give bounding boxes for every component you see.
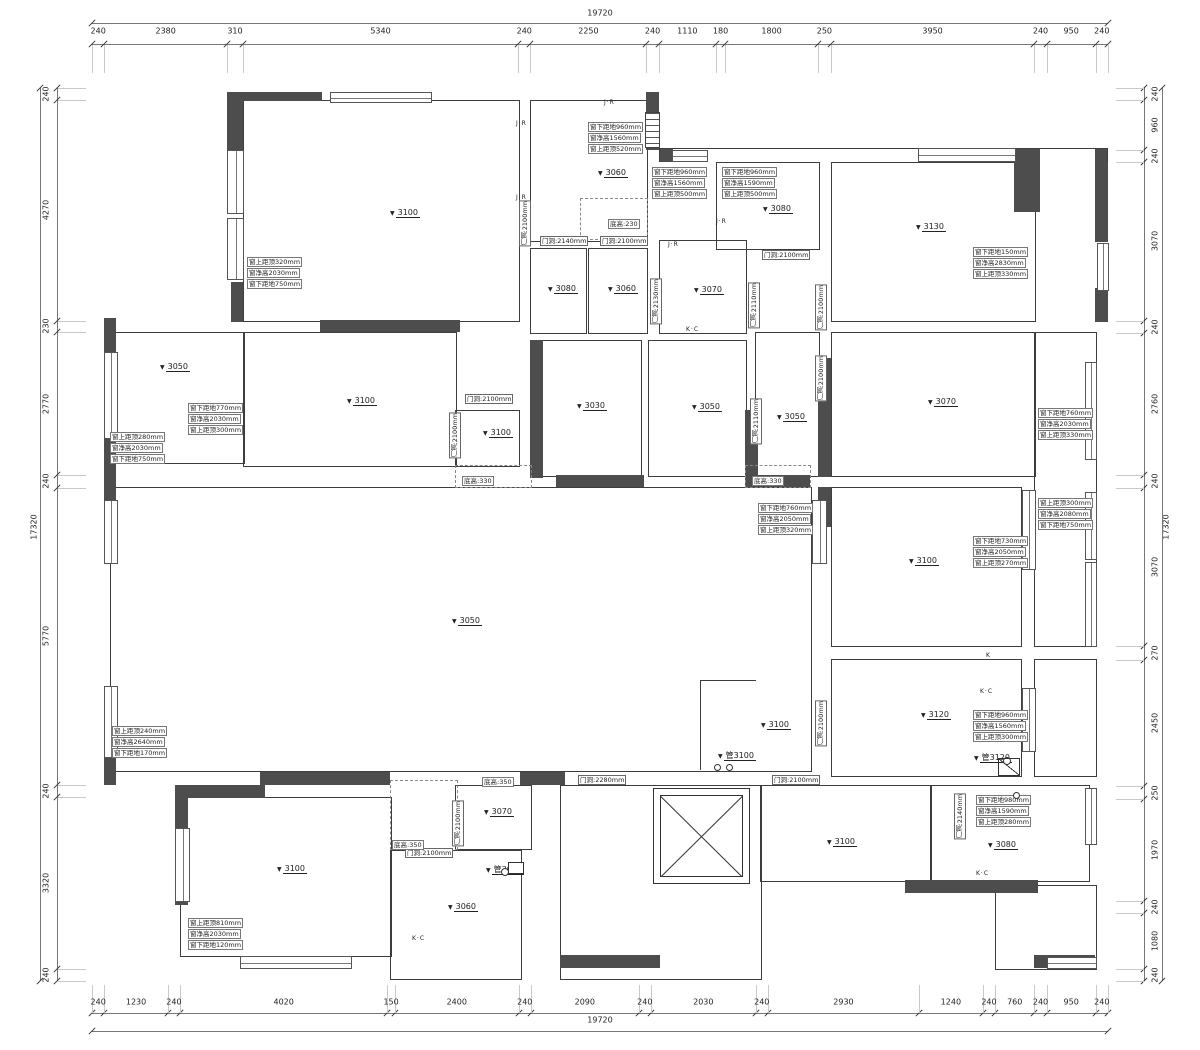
window-mullion <box>1029 689 1030 751</box>
elevation-triangle-icon: ▼ <box>390 210 395 217</box>
window-symbol <box>104 500 118 564</box>
elevation-value: 3050 <box>166 362 190 372</box>
door-note: 门洞:2280mm <box>578 775 626 785</box>
elevation-triangle-icon: ▼ <box>694 287 699 294</box>
window-note-line: 窗下距地760mm <box>758 503 813 513</box>
dim-ext <box>58 969 86 970</box>
wall <box>905 880 1038 893</box>
dim-label-bottom: 950 <box>1064 998 1079 1007</box>
door-note: 门洞:2110mm <box>748 282 760 328</box>
elevator-shaft <box>653 788 750 884</box>
door-note: 门洞:2100mm <box>815 284 827 330</box>
dim-label-bottom: 2030 <box>693 998 713 1007</box>
room-height-label: ▼3120 <box>921 711 951 720</box>
dim-ext <box>92 45 93 73</box>
window-note: 窗下距地150mm窗净高2830mm窗上距顶330mm <box>973 247 1028 280</box>
window-note-line: 窗下距地960mm <box>722 167 777 177</box>
dim-label-bottom: 1230 <box>126 998 146 1007</box>
window-note-line: 窗上距顶300mm <box>188 425 243 435</box>
wall <box>232 92 322 101</box>
elevation-value: 3050 <box>783 412 807 422</box>
dim-label-top: 1110 <box>677 27 697 36</box>
sill-height-note: 底高:230 <box>608 219 640 229</box>
dim-ext <box>659 45 660 73</box>
dim-ext <box>1108 45 1109 73</box>
room-height-label: ▼3070 <box>484 808 514 817</box>
door-note: 门洞:2100mm <box>519 200 531 246</box>
window-note-line: 窗上距顶500mm <box>652 189 707 199</box>
dim-label-top: 310 <box>227 27 242 36</box>
sill-height-note: 底高:330 <box>752 476 784 486</box>
dim-label-left: 240 <box>42 87 51 102</box>
dim-ext <box>1116 333 1144 334</box>
window-mullion <box>820 501 821 563</box>
window-note: 窗下距地730mm窗净高2050mm窗上距顶270mm <box>973 536 1028 569</box>
elevation-value: 3100 <box>833 837 857 847</box>
room-height-label: ▼3100 <box>483 429 513 438</box>
dim-label-bottom: 240 <box>517 998 532 1007</box>
dim-total-bottom: 19720 <box>587 1016 612 1025</box>
dim-label-left: 4270 <box>42 200 51 220</box>
window-note-line: 窗上距顶300mm <box>973 732 1028 742</box>
window-mullion <box>331 98 431 99</box>
elevation-triangle-icon: ▼ <box>160 364 165 371</box>
dim-label-right: 3070 <box>1151 231 1160 251</box>
dim-label-right: 240 <box>1151 899 1160 914</box>
wall-line <box>659 148 1108 149</box>
window-note: 窗上距顶320mm窗净高2030mm窗下距地750mm <box>247 257 302 290</box>
elevation-value: 管3100 <box>724 751 756 761</box>
dim-ext <box>58 332 86 333</box>
dim-ext <box>1116 162 1144 163</box>
dim-label-bottom: 240 <box>981 998 996 1007</box>
window-symbol <box>918 148 1016 162</box>
dim-label-right: 270 <box>1151 645 1160 660</box>
wall <box>659 148 673 162</box>
elevation-triangle-icon: ▼ <box>988 842 993 849</box>
elevation-triangle-icon: ▼ <box>483 430 488 437</box>
elevation-value: 3070 <box>934 397 958 407</box>
room-height-label: ▼3080 <box>763 205 793 214</box>
sill-height-note: 底高:350 <box>482 777 514 787</box>
elevation-value: 3060 <box>604 168 628 178</box>
room-outline <box>455 785 532 850</box>
window-note-line: 窗上距顶300mm <box>1038 498 1093 508</box>
dim-ext <box>1116 150 1144 151</box>
wall <box>1095 148 1108 242</box>
room-height-label: ▼3100 <box>390 209 420 218</box>
wall <box>1014 148 1040 212</box>
window-symbol <box>812 500 827 564</box>
small-fixture <box>508 862 524 874</box>
room-outline <box>110 487 812 772</box>
dim-label-bottom: 2400 <box>447 998 467 1007</box>
wall <box>520 772 565 785</box>
wall <box>530 340 543 478</box>
room-outline <box>755 332 820 477</box>
window-mullion <box>1091 563 1092 646</box>
dim-ext <box>1116 488 1144 489</box>
elevation-triangle-icon: ▼ <box>277 866 282 873</box>
dim-ext <box>58 797 86 798</box>
dim-ext <box>530 45 531 73</box>
window-note-line: 窗下距地960mm <box>973 710 1028 720</box>
dim-label-right: 240 <box>1151 319 1160 334</box>
room-height-label: ▼3050 <box>692 403 722 412</box>
window-mullion <box>183 829 184 901</box>
dim-ext <box>104 45 105 73</box>
window-symbol <box>240 956 352 969</box>
room-height-label: ▼3130 <box>916 223 946 232</box>
room-height-label: ▼管3100 <box>718 752 756 761</box>
window-note-line: 窗上距顶330mm <box>1038 430 1093 440</box>
point-mark: J·R <box>516 194 527 201</box>
elevation-value: 3050 <box>698 402 722 412</box>
elevation-triangle-icon: ▼ <box>718 753 723 760</box>
window-note-line: 窗下距地750mm <box>110 454 165 464</box>
door-note: 门洞:2100mm <box>815 355 827 401</box>
dim-ext <box>227 45 228 73</box>
room-height-label: ▼3080 <box>988 841 1018 850</box>
elevation-triangle-icon: ▼ <box>608 286 613 293</box>
dim-ext <box>1116 321 1144 322</box>
wall <box>260 772 390 785</box>
elevator-inner <box>660 795 743 877</box>
dim-label-top: 240 <box>1033 27 1048 36</box>
window-note-line: 窗下距地120mm <box>188 940 243 950</box>
dim-label-bottom: 2090 <box>575 998 595 1007</box>
window-symbol <box>1085 562 1097 647</box>
dim-label-top: 180 <box>713 27 728 36</box>
dim-ext <box>58 475 86 476</box>
door-note: 门洞:2100mm <box>600 236 648 246</box>
window-note-line: 窗下距地150mm <box>973 247 1028 257</box>
dim-ext <box>1116 646 1144 647</box>
elevation-value: 3100 <box>767 720 791 730</box>
elevation-triangle-icon: ▼ <box>486 867 491 874</box>
wall <box>556 475 644 487</box>
window-mullion <box>673 156 707 157</box>
dim-label-left: 240 <box>42 474 51 489</box>
dim-tick <box>1104 19 1111 26</box>
window-note-line: 窗净高2080mm <box>1038 509 1091 519</box>
dim-ext <box>1034 45 1035 73</box>
dim-label-right: 240 <box>1151 87 1160 102</box>
elevation-triangle-icon: ▼ <box>761 722 766 729</box>
dim-line-bottom <box>92 1013 1108 1014</box>
dim-label-bottom: 2930 <box>833 998 853 1007</box>
dim-label-top: 240 <box>517 27 532 36</box>
dim-ext <box>1116 88 1144 89</box>
wall <box>231 282 243 322</box>
room-height-label: ▼3050 <box>160 363 190 372</box>
window-symbol <box>104 352 118 439</box>
dim-ext <box>1116 660 1144 661</box>
wall <box>175 785 265 798</box>
room-height-label: ▼3060 <box>448 903 478 912</box>
window-mullion <box>1103 244 1104 290</box>
room-height-label: ▼3100 <box>827 838 857 847</box>
dim-label-bottom: 1240 <box>941 998 961 1007</box>
point-mark: J·R <box>716 218 727 225</box>
dim-ext <box>646 45 647 73</box>
sill-height-note: 底高:350 <box>392 840 424 850</box>
dim-ext <box>58 100 86 101</box>
elevation-triangle-icon: ▼ <box>921 712 926 719</box>
dim-ext <box>1116 913 1144 914</box>
dim-label-right: 1080 <box>1151 931 1160 951</box>
dim-ext <box>58 785 86 786</box>
window-note-line: 窗净高2030mm <box>1038 419 1091 429</box>
dim-ext <box>1116 799 1144 800</box>
point-mark: J·R <box>604 99 615 106</box>
window-note-line: 窗净高1590mm <box>722 178 775 188</box>
wall-line <box>1107 148 1108 162</box>
dim-total-left: 17320 <box>30 514 39 539</box>
dim-ext <box>1116 969 1144 970</box>
window-note-line: 窗净高2050mm <box>973 547 1026 557</box>
dim-label-right: 1970 <box>1151 840 1160 860</box>
window-note-line: 窗净高2640mm <box>112 737 165 747</box>
window-symbol <box>1047 957 1097 969</box>
dim-ext <box>58 88 86 89</box>
elevation-value: 3080 <box>994 840 1018 850</box>
wall <box>227 92 243 158</box>
elevation-triangle-icon: ▼ <box>577 403 582 410</box>
window-symbol <box>175 828 190 902</box>
dim-label-top: 240 <box>91 27 106 36</box>
dim-label-bottom: 240 <box>166 998 181 1007</box>
window-note-line: 窗下距地960mm <box>652 167 707 177</box>
door-note: 门洞:2100mm <box>449 412 461 458</box>
dim-label-top: 2250 <box>578 27 598 36</box>
wall <box>320 320 460 332</box>
window-note-line: 窗下距地980mm <box>976 795 1031 805</box>
dim-label-bottom: 240 <box>1094 998 1109 1007</box>
elevation-triangle-icon: ▼ <box>548 286 553 293</box>
elevation-value: 3120 <box>927 710 951 720</box>
window-mullion <box>1091 789 1092 844</box>
sill-height-note: 底高:330 <box>462 476 494 486</box>
floor-plan-canvas: 19720 19720 17320 17320 ▼3100▼3060▼3080▼… <box>0 0 1200 1050</box>
elevation-triangle-icon: ▼ <box>692 404 697 411</box>
elevation-triangle-icon: ▼ <box>598 170 603 177</box>
dim-label-bottom: 4020 <box>273 998 293 1007</box>
elevation-value: 3030 <box>583 401 607 411</box>
dim-ext <box>1116 100 1144 101</box>
window-note-line: 窗净高2030mm <box>188 414 241 424</box>
room-height-label: ▼3050 <box>452 617 482 626</box>
window-note-line: 窗上距顶320mm <box>247 257 302 267</box>
dim-ext <box>1047 45 1048 73</box>
window-mullion <box>111 501 112 563</box>
window-note: 窗下距地760mm窗净高2030mm窗上距顶330mm <box>1038 408 1093 441</box>
dim-total-top: 19720 <box>587 9 612 18</box>
window-note-line: 窗上距顶270mm <box>973 558 1028 568</box>
elevation-value: 3130 <box>922 222 946 232</box>
door-note: 门洞:2100mm <box>815 700 827 746</box>
dim-label-right: 250 <box>1151 785 1160 800</box>
point-mark: J·R <box>516 120 527 127</box>
room-outline <box>455 410 520 467</box>
elevation-triangle-icon: ▼ <box>347 398 352 405</box>
point-mark: K·C <box>686 326 699 333</box>
window-symbol <box>227 150 244 214</box>
window-note-line: 窗下距地960mm <box>588 122 643 132</box>
dim-ext <box>725 45 726 73</box>
window-note: 窗下距地760mm窗净高2050mm窗上距顶320mm <box>758 503 813 536</box>
window-note-line: 窗上距顶330mm <box>973 269 1028 279</box>
dim-label-top: 2380 <box>155 27 175 36</box>
dim-tick <box>1158 977 1165 984</box>
room-height-label: ▼3060 <box>608 285 638 294</box>
elevation-triangle-icon: ▼ <box>763 206 768 213</box>
window-symbol <box>1085 788 1097 845</box>
door-note: 门洞:2100mm <box>452 800 464 846</box>
dim-label-right: 240 <box>1151 474 1160 489</box>
dim-label-right: 3070 <box>1151 557 1160 577</box>
window-note-line: 窗净高2030mm <box>110 443 163 453</box>
dim-label-top: 240 <box>645 27 660 36</box>
dim-label-right: 240 <box>1151 148 1160 163</box>
elevation-value: 3100 <box>396 208 420 218</box>
dim-label-right: 2760 <box>1151 394 1160 414</box>
window-note-line: 窗上距顶500mm <box>722 189 777 199</box>
window-note-line: 窗上距顶320mm <box>758 525 813 535</box>
dim-label-top: 1800 <box>761 27 781 36</box>
dim-ext <box>58 321 86 322</box>
dim-ext <box>58 981 86 982</box>
room-outline <box>760 785 932 882</box>
dim-ext <box>518 45 519 73</box>
window-note-line: 窗下距地770mm <box>188 403 243 413</box>
pipe-circle <box>714 764 721 771</box>
window-note-line: 窗净高2030mm <box>247 268 300 278</box>
dim-line-right <box>1144 88 1145 981</box>
dim-label-left: 230 <box>42 319 51 334</box>
dim-label-top: 250 <box>817 27 832 36</box>
door-note: 门洞:2100mm <box>465 394 513 404</box>
dim-total-line-top <box>92 23 1108 24</box>
dim-line-left <box>57 88 58 981</box>
window-note: 窗下距地980mm窗净高1590mm窗上距顶280mm <box>976 795 1031 828</box>
dim-ext <box>1116 901 1144 902</box>
window-mullion <box>1029 491 1030 569</box>
window-note: 窗下距地960mm窗净高1560mm窗上距顶520mm <box>588 122 643 155</box>
window-mullion <box>236 219 237 279</box>
elevation-value: 3100 <box>283 864 307 874</box>
room-height-label: ▼3100 <box>909 557 939 566</box>
window-symbol <box>227 218 244 280</box>
dim-label-bottom: 150 <box>383 998 398 1007</box>
elevation-triangle-icon: ▼ <box>827 839 832 846</box>
elevation-value: 3080 <box>769 204 793 214</box>
pipe-circle <box>726 764 733 771</box>
wall-line <box>700 680 701 770</box>
door-note: 门洞:2130mm <box>650 278 662 324</box>
point-mark: J·R <box>668 241 679 248</box>
elevation-value: 3050 <box>458 616 482 626</box>
window-mullion <box>919 155 1015 156</box>
window-mullion <box>241 963 351 964</box>
dim-label-left: 240 <box>42 784 51 799</box>
dim-ext <box>58 488 86 489</box>
window-note: 窗下距地960mm窗净高1560mm窗上距顶500mm <box>652 167 707 200</box>
point-mark: K·C <box>980 688 993 695</box>
dim-ext <box>1096 45 1097 73</box>
dim-total-line-bottom <box>92 1031 1108 1032</box>
window-mullion <box>111 353 112 438</box>
elevation-value: 3060 <box>614 284 638 294</box>
window-note-line: 窗净高1560mm <box>652 178 705 188</box>
room-height-label: ▼3070 <box>928 398 958 407</box>
window-note-line: 窗下距地760mm <box>1038 408 1093 418</box>
dim-label-top: 240 <box>1094 27 1109 36</box>
elevation-triangle-icon: ▼ <box>916 224 921 231</box>
window-mullion <box>1048 963 1096 964</box>
dim-line-top <box>92 44 1108 45</box>
window-note: 窗上距顶810mm窗净高2030mm窗下距地120mm <box>188 918 243 951</box>
window-note-line: 窗下距地750mm <box>1038 520 1093 530</box>
window-note-line: 窗净高1590mm <box>976 806 1029 816</box>
dim-label-bottom: 240 <box>1033 998 1048 1007</box>
elevation-triangle-icon: ▼ <box>974 755 979 762</box>
dim-total-line-left <box>40 88 41 981</box>
dim-tick <box>1104 1027 1111 1034</box>
elevation-triangle-icon: ▼ <box>909 558 914 565</box>
dim-label-left: 5770 <box>42 626 51 646</box>
room-height-label: ▼3100 <box>347 397 377 406</box>
point-mark: K·C <box>412 935 425 942</box>
hatch-symbol <box>645 112 660 148</box>
door-note: 门洞:2110mm <box>750 398 762 444</box>
dim-label-bottom: 760 <box>1007 998 1022 1007</box>
dim-label-right: 240 <box>1151 967 1160 982</box>
door-note: 门洞:2100mm <box>762 250 810 260</box>
elevation-triangle-icon: ▼ <box>484 809 489 816</box>
point-mark: K·C <box>976 870 989 877</box>
window-note: 窗上距顶240mm窗净高2640mm窗下距地170mm <box>112 726 167 759</box>
dim-ext <box>831 45 832 73</box>
door-note: 门洞:2100mm <box>772 775 820 785</box>
window-note-line: 窗上距顶240mm <box>112 726 167 736</box>
room-height-label: ▼3070 <box>694 286 724 295</box>
wall-line <box>700 680 756 681</box>
room-height-label: ▼3100 <box>761 721 791 730</box>
window-note-line: 窗净高1560mm <box>588 133 641 143</box>
dim-ext <box>243 45 244 73</box>
window-note-line: 窗上距顶520mm <box>588 144 643 154</box>
dim-ext <box>818 45 819 73</box>
window-symbol <box>672 150 708 162</box>
window-note-line: 窗下距地170mm <box>112 748 167 758</box>
corner-fixture <box>998 758 1020 776</box>
dim-label-left: 2770 <box>42 394 51 414</box>
window-note-line: 窗净高2030mm <box>188 929 241 939</box>
room-outline <box>831 162 1036 322</box>
window-note-line: 窗净高1560mm <box>973 721 1026 731</box>
dim-total-line-right <box>1162 88 1163 981</box>
dim-label-top: 5340 <box>370 27 390 36</box>
window-symbol <box>330 92 432 103</box>
door-note: 门洞:2140mm <box>540 236 588 246</box>
window-note: 窗上距顶300mm窗净高2080mm窗下距地750mm <box>1038 498 1093 531</box>
window-note: 窗下距地960mm窗净高1590mm窗上距顶500mm <box>722 167 777 200</box>
window-note: 窗上距顶280mm窗净高2030mm窗下距地750mm <box>110 432 165 465</box>
pipe-circle <box>1013 792 1020 799</box>
dim-label-right: 2450 <box>1151 713 1160 733</box>
elevation-value: 3070 <box>490 807 514 817</box>
